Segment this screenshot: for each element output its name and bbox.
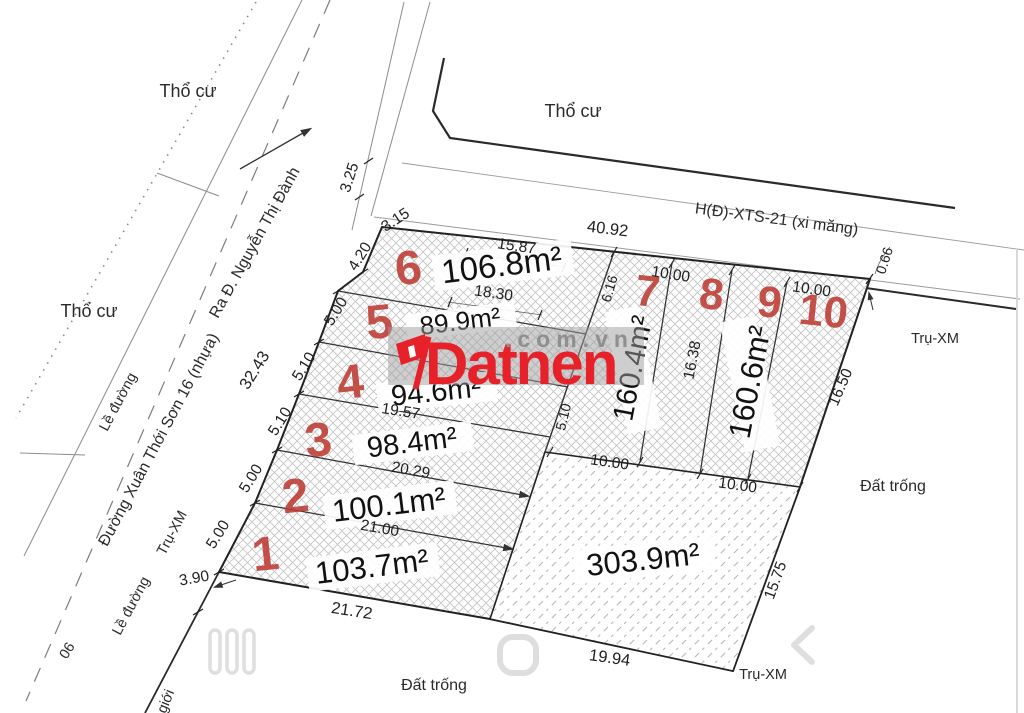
home-icon[interactable] — [500, 637, 536, 673]
arrow-0-66 — [869, 293, 873, 310]
watermark-suffix: .com.vn — [505, 326, 634, 352]
zone-dat-trong-bottom: Đất trống — [401, 677, 467, 694]
back-icon[interactable] — [794, 628, 812, 662]
shoulder-label-top: Lề đường — [96, 370, 140, 434]
left-road-name: Đường Xuân Thới Sơn 16 (nhựa) — [96, 331, 223, 550]
plot-number-9: 9 — [755, 277, 784, 328]
zone-tho-cu-top-left: Thổ cư — [159, 81, 216, 101]
road-centerline-dashed — [26, 0, 330, 701]
map-canvas: Thổ cư Thổ cư Thổ cư Đất trống Đất trống… — [0, 0, 1024, 713]
dim-19-94: 19.94 — [588, 646, 631, 670]
road-direction-arrow — [240, 129, 310, 169]
land-subdivision-map: Thổ cư Thổ cư Thổ cư Đất trống Đất trống… — [0, 0, 1024, 713]
dim-0-66: 0.66 — [872, 245, 896, 276]
boundary-east-extension — [866, 288, 1016, 309]
corner-note-label: 06 — [57, 640, 79, 662]
post-label-right: Trụ-XM — [911, 331, 959, 347]
dim-40-92: 40.92 — [586, 218, 629, 241]
boundary-south-extension — [145, 572, 219, 713]
zone-tho-cu-mid-left: Thổ cư — [60, 301, 117, 321]
road-right-edge-inner — [352, 2, 404, 230]
plot-number-3: 3 — [302, 413, 334, 469]
post-label-bottom: Trụ-XM — [739, 667, 787, 683]
road-dotted-boundary — [16, 2, 256, 418]
plot-number-1: 1 — [249, 527, 281, 583]
top-road-name: H(Đ)-XTS-21 (xi măng) — [694, 200, 859, 238]
watermark: Datnen .com.vn — [388, 326, 644, 397]
recents-icon[interactable] — [210, 630, 254, 673]
plot-number-6: 6 — [392, 241, 424, 297]
dim-21-72: 21.72 — [330, 599, 374, 623]
dim-3-90: 3.90 — [178, 568, 211, 590]
neighbor-parcel-boundary — [433, 58, 955, 208]
arrow-3-90 — [215, 580, 236, 587]
plot-number-2: 2 — [279, 469, 311, 525]
dim-3-25: 3.25 — [337, 161, 362, 195]
left-road-exit: Ra Đ. Nguyễn Thị Đành — [205, 164, 304, 322]
boundary-fragment-label: giới — [154, 687, 178, 713]
zone-dat-trong-right: Đất trống — [860, 478, 926, 495]
plot-number-8: 8 — [697, 269, 726, 320]
dim-32-43: 32.43 — [236, 348, 273, 393]
shoulder-label-bottom: Lề đường — [109, 574, 153, 638]
zone-tho-cu-top-right: Thổ cư — [544, 101, 601, 121]
dim-5-00-c: 5.00 — [203, 517, 234, 552]
post-label-left: Trụ-XM — [154, 508, 191, 558]
